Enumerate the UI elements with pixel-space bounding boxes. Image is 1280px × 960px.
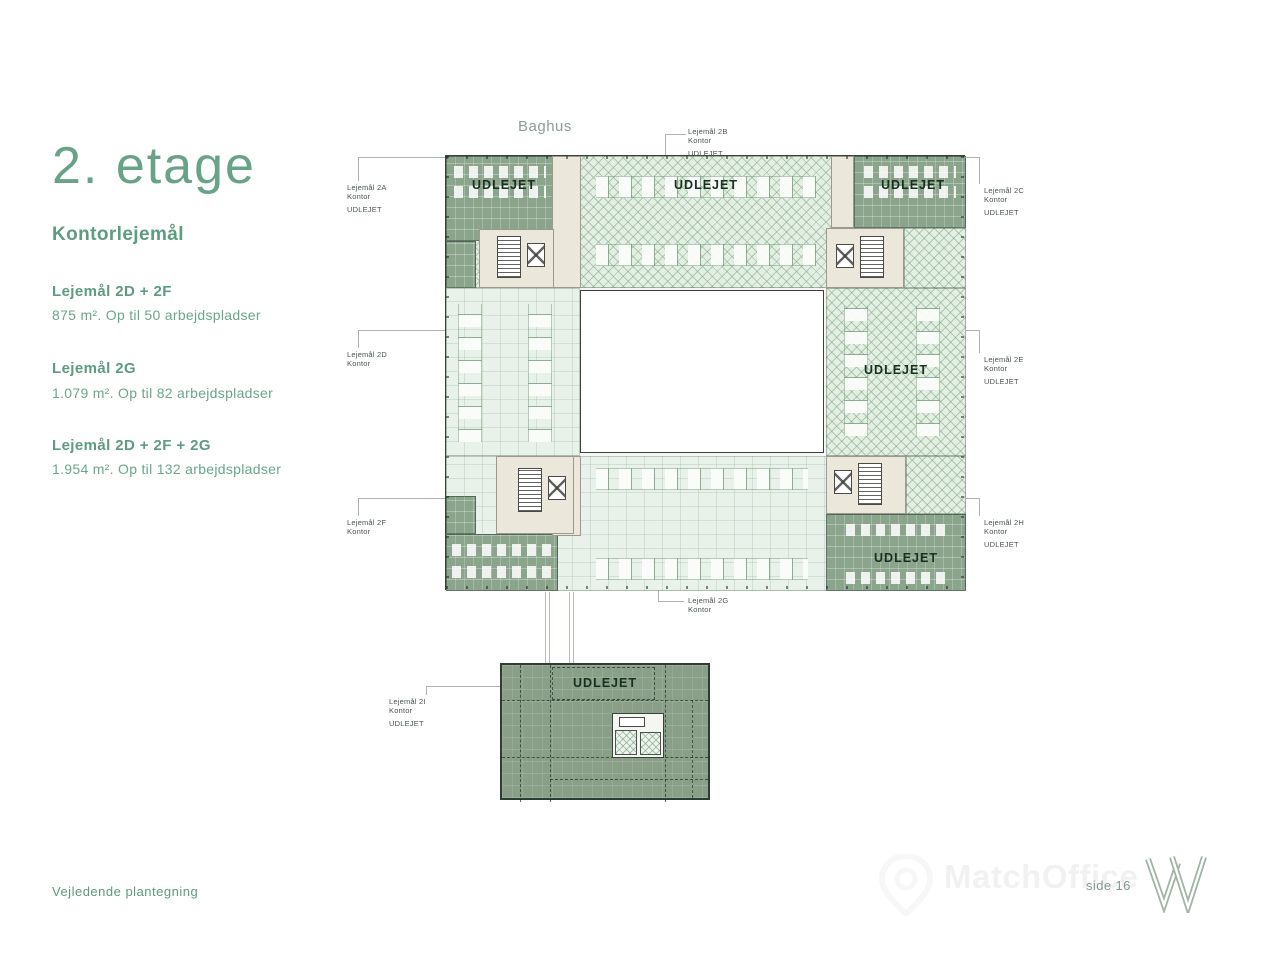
area-2f-strip xyxy=(446,496,476,534)
matchoffice-pin-icon xyxy=(878,854,934,921)
corridor-connector-line xyxy=(573,592,574,663)
udlejet-overlay-2h: UDLEJET xyxy=(874,551,938,565)
stairs-icon xyxy=(518,468,542,512)
label-leader-line xyxy=(658,590,684,602)
desk-cluster xyxy=(596,244,816,266)
page-title: 2. etage xyxy=(52,136,256,196)
page-number: side 16 xyxy=(1086,878,1131,893)
desk-cluster xyxy=(864,166,956,178)
unit-label-2g: Lejemål 2G Kontor xyxy=(688,596,728,614)
partition-line xyxy=(502,700,708,701)
udlejet-overlay-2i: UDLEJET xyxy=(573,676,637,690)
label-leader-line xyxy=(965,498,980,516)
lease-3-title: Lejemål 2D + 2F + 2G xyxy=(52,437,211,454)
area-2c-hatch xyxy=(904,228,966,288)
partition-line xyxy=(502,757,708,758)
core-southwest xyxy=(496,456,574,534)
unit-label-2i: Lejemål 2I Kontor UDLEJET xyxy=(389,697,426,728)
elevator-icon xyxy=(548,476,566,500)
core-northeast xyxy=(826,228,904,288)
desk-cluster xyxy=(846,572,950,584)
column-ticks xyxy=(961,156,964,589)
back-building-core xyxy=(612,713,664,758)
label-leader-line xyxy=(358,498,445,516)
desk-cluster xyxy=(458,304,482,442)
elevator-icon xyxy=(619,717,645,727)
footer-note: Vejledende plantegning xyxy=(52,884,198,899)
lease-1-title: Lejemål 2D + 2F xyxy=(52,283,172,300)
unit-label-2f: Lejemål 2F Kontor xyxy=(347,518,386,536)
core-strip-left xyxy=(552,156,581,288)
corridor-connector-line xyxy=(549,592,550,663)
core-hatch xyxy=(615,730,637,755)
desk-cluster xyxy=(596,558,808,580)
unit-label-2d: Lejemål 2D Kontor xyxy=(347,350,387,368)
label-leader-line xyxy=(665,134,686,155)
unit-label-2h: Lejemål 2H Kontor UDLEJET xyxy=(984,518,1024,549)
desk-cluster xyxy=(452,544,552,556)
section-heading: Kontorlejemål xyxy=(52,224,184,246)
floor-plan-main-building: UDLEJET UDLEJET UDLEJET UDLEJET UDLEJET xyxy=(445,155,965,590)
unit-label-2c: Lejemål 2C Kontor UDLEJET xyxy=(984,186,1024,217)
udlejet-overlay-2e: UDLEJET xyxy=(864,363,928,377)
core-southeast xyxy=(826,456,906,514)
partition-line xyxy=(665,665,666,802)
lease-3-desc: 1.954 m². Op til 132 arbejdspladser xyxy=(52,461,281,477)
baghus-label: Baghus xyxy=(518,118,572,135)
area-2a-strip xyxy=(446,241,476,288)
column-ticks xyxy=(446,156,449,589)
corridor-connector-line xyxy=(569,592,570,663)
elevator-icon xyxy=(836,244,854,268)
area-2f-rented xyxy=(446,534,558,591)
core-strip-right xyxy=(831,156,854,228)
desk-cluster xyxy=(528,304,552,442)
desk-cluster xyxy=(454,166,546,178)
unit-label-2a: Lejemål 2A Kontor UDLEJET xyxy=(347,183,387,214)
column-ticks xyxy=(446,586,964,589)
partition-line xyxy=(692,700,693,798)
label-leader-line xyxy=(358,330,445,348)
lease-1-desc: 875 m². Op til 50 arbejdspladser xyxy=(52,307,261,323)
stairs-icon xyxy=(860,236,884,278)
lease-2-desc: 1.079 m². Op til 82 arbejdspladser xyxy=(52,385,273,401)
inner-courtyard xyxy=(580,290,824,453)
corridor-connector-line xyxy=(545,592,546,663)
udlejet-overlay-2a: UDLEJET xyxy=(472,178,536,192)
desk-cluster xyxy=(846,524,950,536)
stairs-icon xyxy=(858,463,882,505)
core-hatch xyxy=(640,732,661,755)
partition-line xyxy=(550,665,551,802)
label-leader-line xyxy=(965,330,980,353)
core-northwest xyxy=(479,229,554,288)
company-logo-w xyxy=(1142,851,1210,918)
elevator-icon xyxy=(527,243,545,267)
partition-line xyxy=(520,665,521,802)
desk-cluster xyxy=(596,468,808,490)
lease-2-title: Lejemål 2G xyxy=(52,360,136,377)
label-leader-line xyxy=(358,157,445,181)
udlejet-overlay-2b: UDLEJET xyxy=(674,178,738,192)
stairs-icon xyxy=(497,236,521,278)
udlejet-overlay-2c: UDLEJET xyxy=(881,178,945,192)
desk-cluster xyxy=(452,566,552,578)
label-leader-line xyxy=(965,157,980,184)
area-2h-hatch xyxy=(906,456,966,514)
partition-line xyxy=(550,779,708,780)
brochure-page: 2. etage Kontorlejemål Lejemål 2D + 2F 8… xyxy=(0,0,1280,960)
unit-label-2e: Lejemål 2E Kontor UDLEJET xyxy=(984,355,1024,386)
elevator-icon xyxy=(834,470,852,494)
floor-plan-back-building: UDLEJET xyxy=(500,663,710,800)
label-leader-line xyxy=(426,686,500,695)
unit-label-2b: Lejemål 2B Kontor UDLEJET xyxy=(688,127,728,158)
